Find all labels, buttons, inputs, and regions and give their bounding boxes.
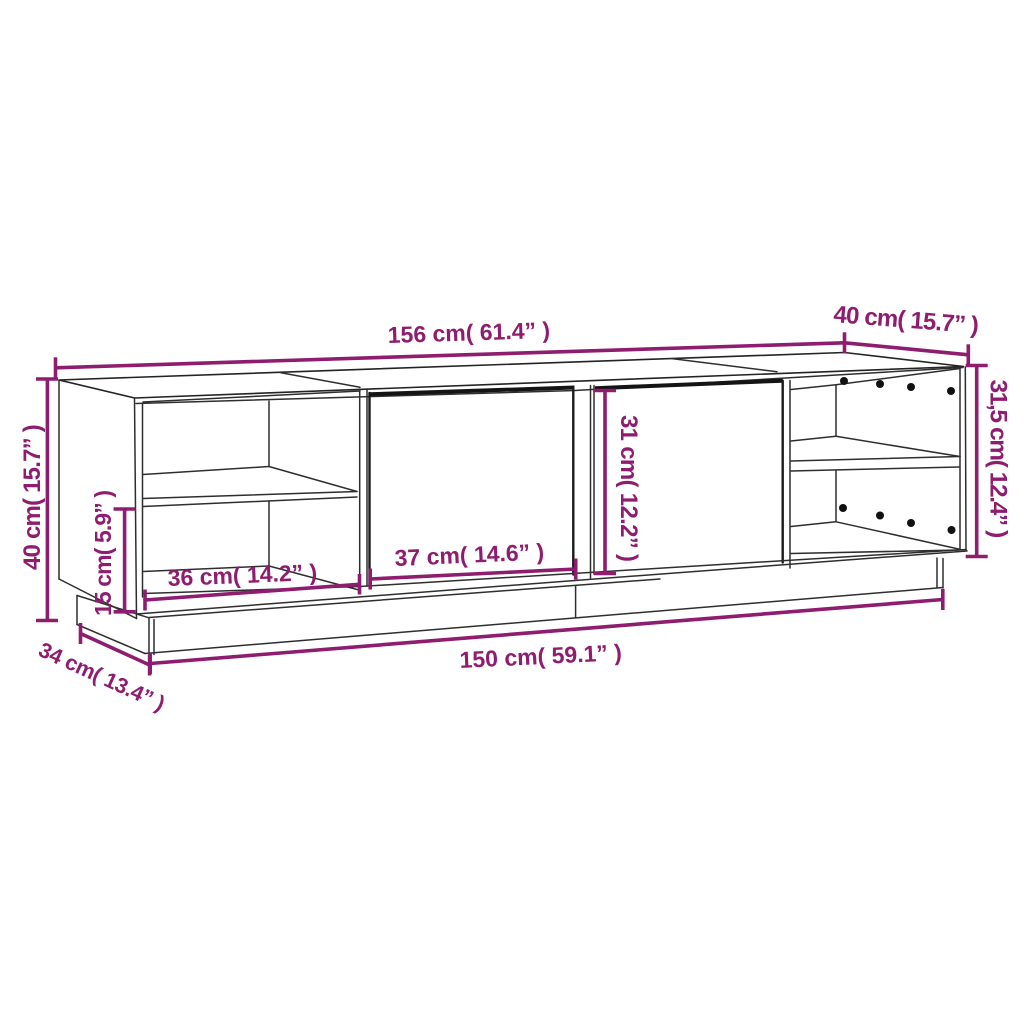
svg-text:156 cm( 61.4” ): 156 cm( 61.4” ) [387, 317, 550, 348]
svg-text:31,5 cm( 12.4” ): 31,5 cm( 12.4” ) [985, 380, 1012, 538]
svg-text:40 cm( 15.7” ): 40 cm( 15.7” ) [19, 425, 46, 570]
svg-text:15 cm( 5.9” ): 15 cm( 5.9” ) [90, 491, 116, 616]
svg-text:31 cm( 12.2” ): 31 cm( 12.2” ) [615, 415, 642, 561]
